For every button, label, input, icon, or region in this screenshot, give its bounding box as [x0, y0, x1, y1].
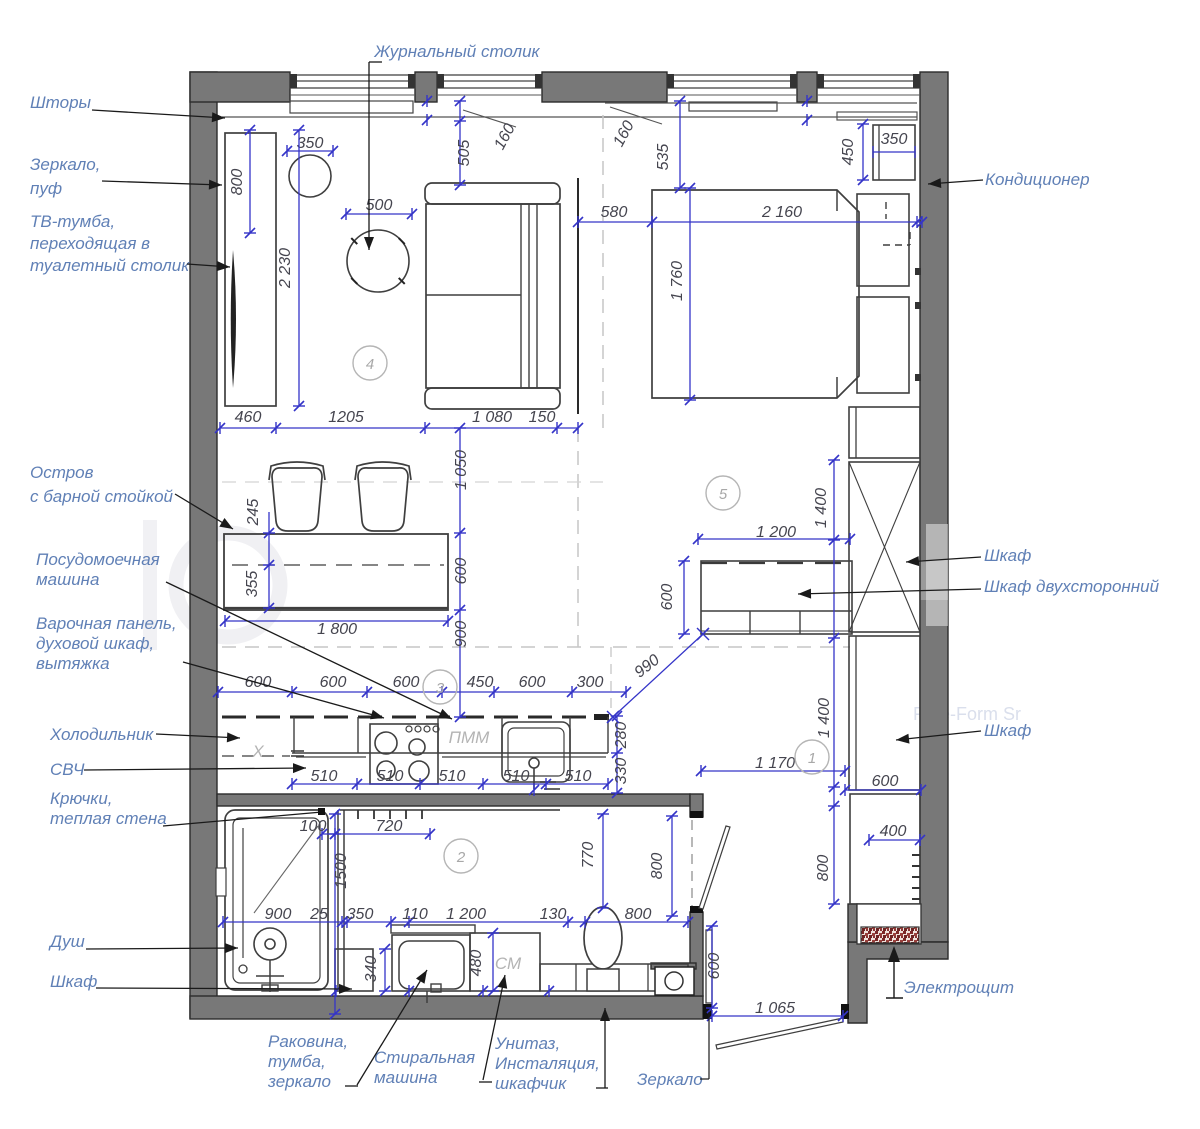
- svg-text:Унитаз,: Унитаз,: [494, 1034, 560, 1053]
- svg-text:Шкаф: Шкаф: [984, 546, 1031, 565]
- svg-text:Шкаф: Шкаф: [50, 972, 97, 991]
- svg-text:Журнальный столик: Журнальный столик: [373, 42, 540, 61]
- svg-text:450: 450: [467, 674, 494, 691]
- svg-text:1 400: 1 400: [813, 488, 830, 528]
- svg-text:600: 600: [659, 584, 676, 611]
- svg-text:1 200: 1 200: [756, 524, 796, 541]
- svg-text:духовой шкаф,: духовой шкаф,: [36, 634, 154, 653]
- svg-text:2: 2: [456, 849, 466, 866]
- svg-text:1 800: 1 800: [317, 621, 357, 638]
- svg-text:1: 1: [808, 750, 816, 767]
- svg-text:Шкаф двухсторонний: Шкаф двухсторонний: [984, 577, 1160, 596]
- svg-text:машина: машина: [374, 1068, 437, 1087]
- svg-text:Зеркало,: Зеркало,: [30, 155, 100, 174]
- svg-text:Посудомоечная: Посудомоечная: [36, 550, 160, 569]
- svg-text:теплая стена: теплая стена: [50, 809, 167, 828]
- svg-text:СВЧ: СВЧ: [50, 760, 85, 779]
- svg-text:100: 100: [300, 818, 327, 835]
- svg-text:5: 5: [719, 486, 728, 503]
- svg-text:4: 4: [366, 356, 374, 373]
- svg-text:Стиральная: Стиральная: [374, 1048, 475, 1067]
- svg-text:800: 800: [625, 906, 652, 923]
- svg-text:1 170: 1 170: [755, 755, 795, 772]
- svg-text:900: 900: [453, 621, 470, 648]
- svg-text:1 400: 1 400: [816, 698, 833, 738]
- svg-text:770: 770: [580, 842, 597, 869]
- svg-text:пуф: пуф: [30, 179, 62, 198]
- svg-text:Крючки,: Крючки,: [50, 789, 113, 808]
- svg-text:800: 800: [815, 855, 832, 882]
- svg-text:СМ: СМ: [495, 954, 522, 973]
- svg-text:510: 510: [503, 768, 530, 785]
- svg-text:400: 400: [880, 823, 907, 840]
- svg-text:130: 130: [540, 906, 567, 923]
- svg-text:505: 505: [456, 140, 473, 167]
- svg-text:600: 600: [519, 674, 546, 691]
- svg-text:Душ: Душ: [48, 932, 85, 951]
- svg-text:510: 510: [565, 768, 592, 785]
- svg-text:1 080: 1 080: [472, 409, 512, 426]
- svg-text:535: 535: [655, 144, 672, 171]
- svg-text:1 050: 1 050: [453, 450, 470, 490]
- svg-text:900: 900: [265, 906, 292, 923]
- svg-text:1 760: 1 760: [669, 261, 686, 301]
- svg-text:510: 510: [377, 768, 404, 785]
- svg-text:460: 460: [235, 409, 262, 426]
- svg-text:туалетный столик: туалетный столик: [30, 256, 190, 275]
- svg-text:Остров: Остров: [30, 463, 94, 482]
- svg-text:1500: 1500: [333, 853, 350, 889]
- svg-text:Шкаф: Шкаф: [984, 721, 1031, 740]
- svg-text:280: 280: [613, 722, 630, 750]
- svg-text:с барной стойкой: с барной стойкой: [30, 487, 174, 506]
- svg-text:480: 480: [468, 950, 485, 977]
- svg-text:переходящая в: переходящая в: [30, 234, 150, 253]
- svg-text:Зеркало: Зеркало: [637, 1070, 703, 1089]
- svg-text:600: 600: [872, 773, 899, 790]
- svg-text:150: 150: [529, 409, 556, 426]
- svg-text:330: 330: [613, 758, 630, 785]
- svg-text:600: 600: [453, 558, 470, 585]
- svg-text:800: 800: [649, 853, 666, 880]
- svg-text:510: 510: [439, 768, 466, 785]
- svg-text:600: 600: [320, 674, 347, 691]
- svg-text:Шторы: Шторы: [30, 93, 92, 112]
- svg-text:600: 600: [393, 674, 420, 691]
- svg-text:1205: 1205: [328, 409, 364, 426]
- svg-text:355: 355: [244, 571, 261, 598]
- svg-text:350: 350: [347, 906, 374, 923]
- svg-text:245: 245: [245, 499, 262, 527]
- svg-text:350: 350: [297, 135, 324, 152]
- svg-text:2 230: 2 230: [277, 248, 294, 289]
- svg-text:510: 510: [311, 768, 338, 785]
- svg-text:Варочная панель,: Варочная панель,: [36, 614, 177, 633]
- svg-text:машина: машина: [36, 570, 99, 589]
- svg-text:Холодильник: Холодильник: [49, 725, 154, 744]
- svg-text:X: X: [251, 742, 264, 761]
- svg-text:Раковина,: Раковина,: [268, 1032, 348, 1051]
- svg-text:3: 3: [436, 680, 445, 697]
- svg-text:ПММ: ПММ: [449, 728, 490, 747]
- svg-text:2 160: 2 160: [761, 204, 802, 221]
- svg-text:1 065: 1 065: [755, 1000, 795, 1017]
- svg-text:тумба,: тумба,: [268, 1052, 326, 1071]
- svg-text:вытяжка: вытяжка: [36, 654, 110, 673]
- svg-text:зеркало: зеркало: [267, 1072, 331, 1091]
- svg-text:Электрощит: Электрощит: [904, 978, 1014, 997]
- svg-text:Кондиционер: Кондиционер: [985, 170, 1090, 189]
- svg-text:шкафчик: шкафчик: [495, 1074, 567, 1093]
- svg-text:600: 600: [706, 953, 723, 980]
- svg-text:ТВ-тумба,: ТВ-тумба,: [30, 212, 115, 231]
- svg-text:1 200: 1 200: [446, 906, 486, 923]
- svg-text:580: 580: [601, 204, 628, 221]
- svg-text:300: 300: [577, 674, 604, 691]
- svg-text:720: 720: [376, 818, 403, 835]
- svg-text:340: 340: [363, 956, 380, 983]
- svg-text:25: 25: [309, 906, 328, 923]
- svg-text:Инсталяция,: Инсталяция,: [495, 1054, 600, 1073]
- svg-text:110: 110: [402, 906, 428, 923]
- svg-text:500: 500: [366, 197, 393, 214]
- svg-text:450: 450: [840, 139, 857, 166]
- svg-text:350: 350: [881, 131, 908, 148]
- svg-text:800: 800: [229, 169, 246, 196]
